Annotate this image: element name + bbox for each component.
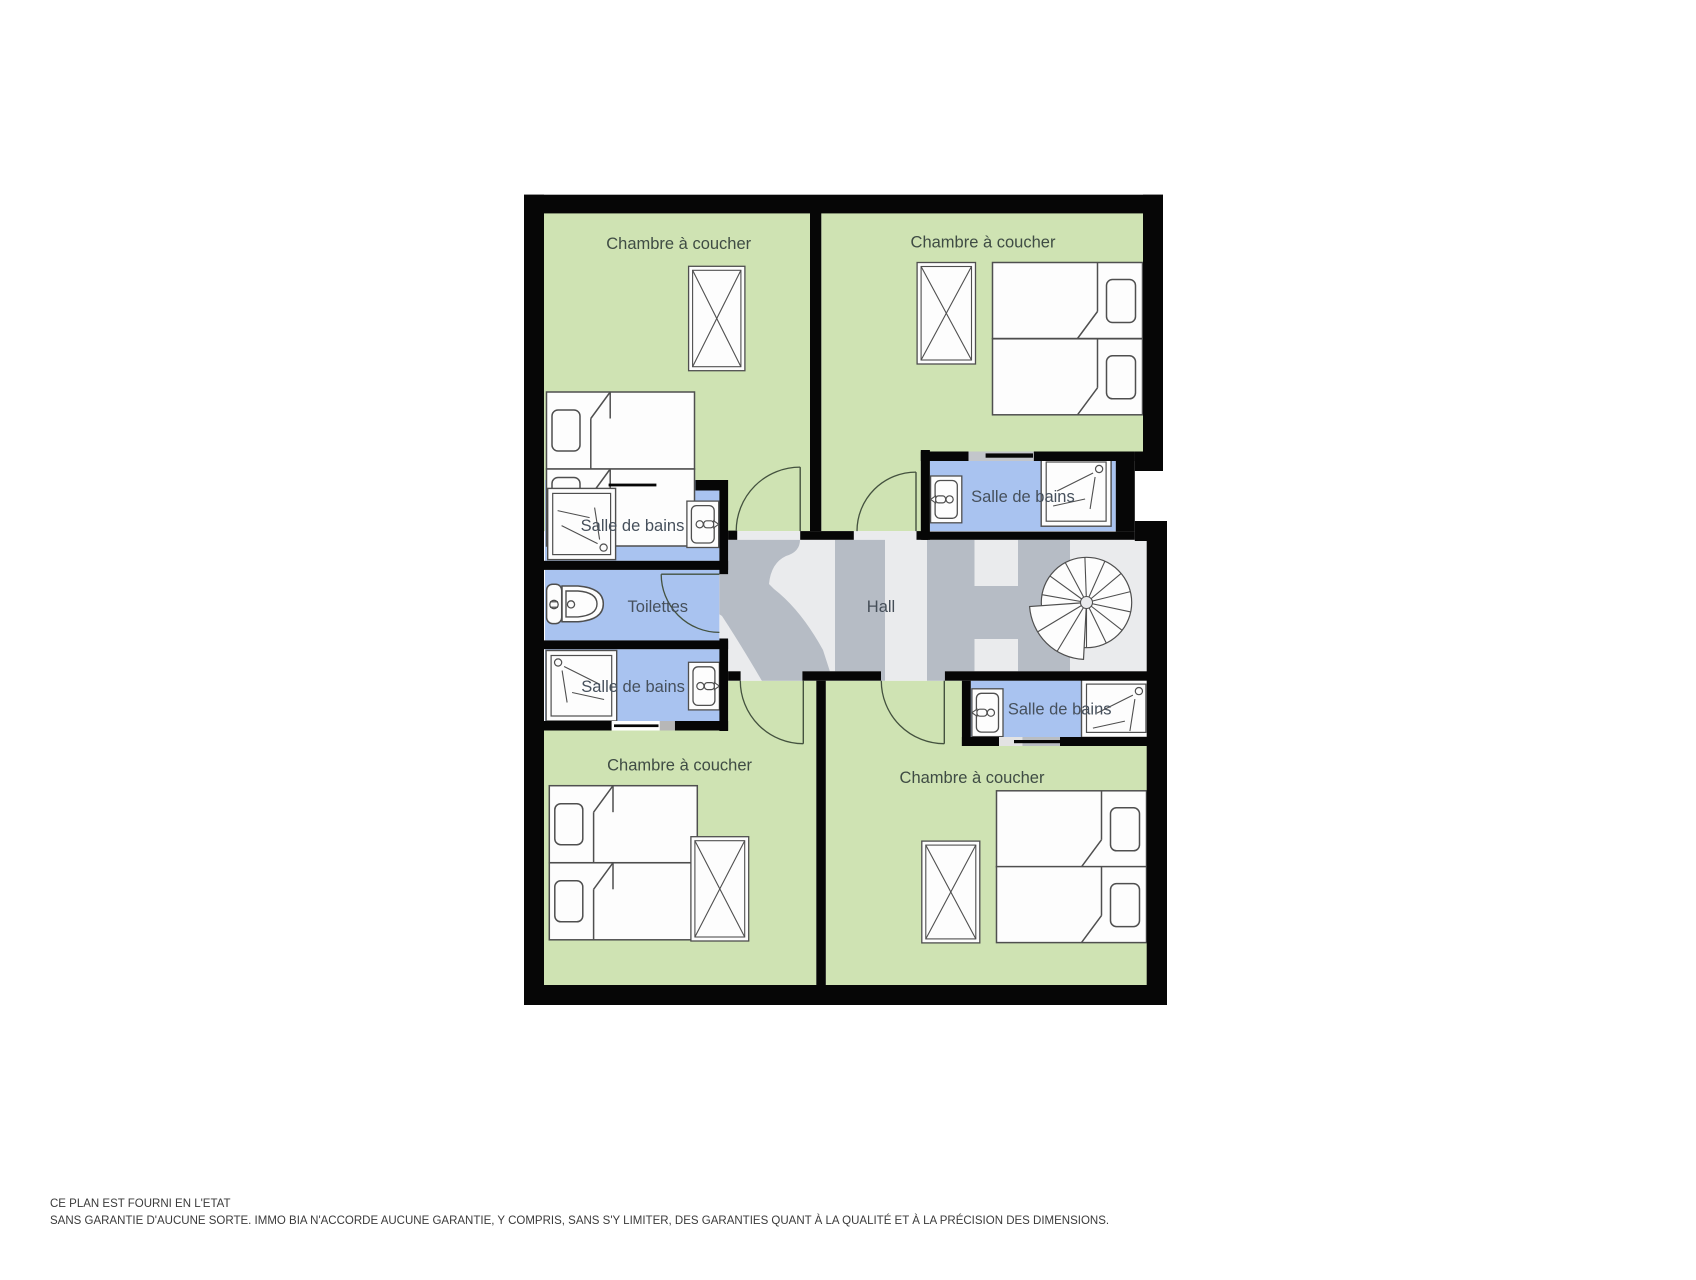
svg-text:Salle de bains: Salle de bains (581, 517, 685, 535)
svg-text:Toilettes: Toilettes (628, 598, 689, 616)
svg-text:Salle de bains: Salle de bains (581, 678, 685, 696)
svg-text:Chambre à coucher: Chambre à coucher (900, 769, 1045, 787)
svg-text:Hall: Hall (867, 598, 895, 616)
svg-text:Chambre à coucher: Chambre à coucher (607, 756, 752, 774)
svg-text:Salle de bains: Salle de bains (971, 488, 1075, 506)
svg-text:Salle de bains: Salle de bains (1008, 701, 1112, 719)
svg-text:Chambre à coucher: Chambre à coucher (606, 235, 751, 253)
svg-text:Chambre à coucher: Chambre à coucher (911, 234, 1056, 252)
